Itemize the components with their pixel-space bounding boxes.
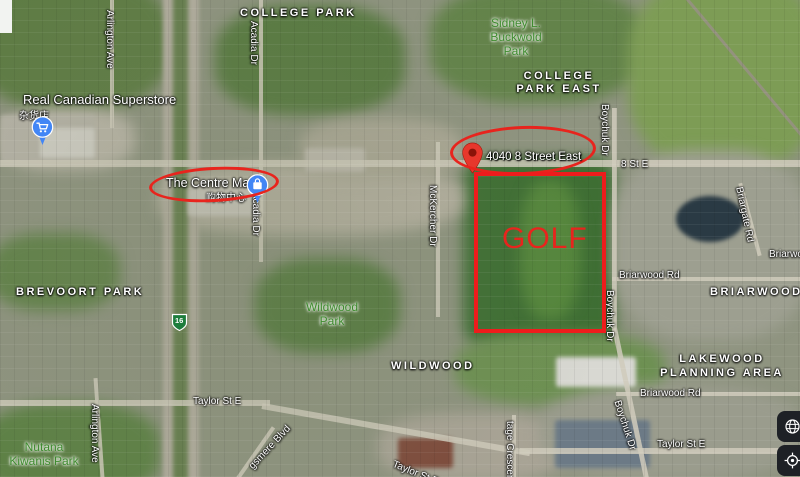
park-label-nutana-kiwanis: Nutana Kiwanis Park xyxy=(4,440,84,468)
terrain-college-field xyxy=(215,5,405,115)
street-label-mckercher-dr: McKercher Dr xyxy=(427,185,438,247)
satellite-layer-button[interactable] xyxy=(777,411,800,442)
address-pin-label[interactable]: 4040 8 Street East xyxy=(486,151,581,163)
road-8-st-e xyxy=(0,160,800,167)
highway-16-number-label: 16 xyxy=(175,316,183,325)
street-label-briarwood-rd-lower: Briarwood Rd xyxy=(640,388,701,399)
park-label-line: Nutana xyxy=(4,440,84,454)
neighborhood-label-college-park-east: COLLEGE PARK EAST xyxy=(503,70,615,96)
neighborhood-label-college-park: COLLEGE PARK xyxy=(240,7,357,19)
street-label-heritage-crescent: tage Crescent xyxy=(504,421,515,477)
neighborhood-label-briarwood: BRIARWOOD xyxy=(710,286,800,298)
park-label-line: Buckwold xyxy=(484,30,548,44)
park-label-line: Wildwood xyxy=(299,300,365,314)
park-label-wildwood-park: Wildwood Park xyxy=(299,300,365,328)
street-label-taylor-st-e-right: Taylor St E xyxy=(657,439,705,450)
area-label-line: PLANNING AREA xyxy=(656,366,788,380)
park-label-line: Park xyxy=(299,314,365,328)
street-label-acadia-dr-north: Acadia Dr xyxy=(248,21,259,65)
annotation-golf-text: GOLF xyxy=(502,222,588,256)
street-label-boychuk-dr-north: Boychuk Dr xyxy=(599,104,610,156)
park-label-line: Park xyxy=(484,44,548,58)
street-label-briarwood-rd-right: Briarwood Rd xyxy=(769,249,800,260)
park-label-line: Kiwanis Park xyxy=(4,454,84,468)
street-label-taylor-st-e-left: Taylor St E xyxy=(193,396,241,407)
globe-icon xyxy=(783,417,800,436)
neighborhood-label-wildwood: WILDWOOD xyxy=(391,360,475,372)
briarwood-pond xyxy=(676,196,744,242)
neighborhood-label-lakewood: LAKEWOOD PLANNING AREA xyxy=(656,352,788,380)
area-label-line: COLLEGE xyxy=(503,70,615,83)
neighborhood-label-brevoort-park: BREVOORT PARK xyxy=(16,286,144,298)
terrain-briarwood-res xyxy=(612,150,800,340)
street-label-briarwood-rd-upper: Briarwood Rd xyxy=(619,270,680,281)
street-label-arlington-ave-north: Arlington Ave xyxy=(104,10,115,69)
street-label-arlington-ave-south: Arlington Ave xyxy=(89,404,100,463)
park-label-sidney-buckwold: Sidney L. Buckwold Park xyxy=(484,16,548,58)
location-target-icon xyxy=(783,451,800,470)
street-label-8-st-e: 8 St E xyxy=(621,159,648,170)
ui-fragment xyxy=(0,0,12,33)
park-label-line: Sidney L. xyxy=(484,16,548,30)
my-location-button[interactable] xyxy=(777,445,800,476)
terrain-field-topright xyxy=(628,0,800,170)
terrain-brevoort-green xyxy=(0,233,120,311)
area-label-line: LAKEWOOD xyxy=(656,352,788,366)
highway-16-shield: 16 xyxy=(171,313,188,332)
poi-label-superstore[interactable]: Real Canadian Superstore xyxy=(23,92,176,107)
satellite-map-canvas[interactable]: COLLEGE PARK Sidney L. Buckwold Park COL… xyxy=(0,0,800,477)
area-label-line: PARK EAST xyxy=(503,83,615,96)
superstore-pin[interactable] xyxy=(31,116,54,151)
